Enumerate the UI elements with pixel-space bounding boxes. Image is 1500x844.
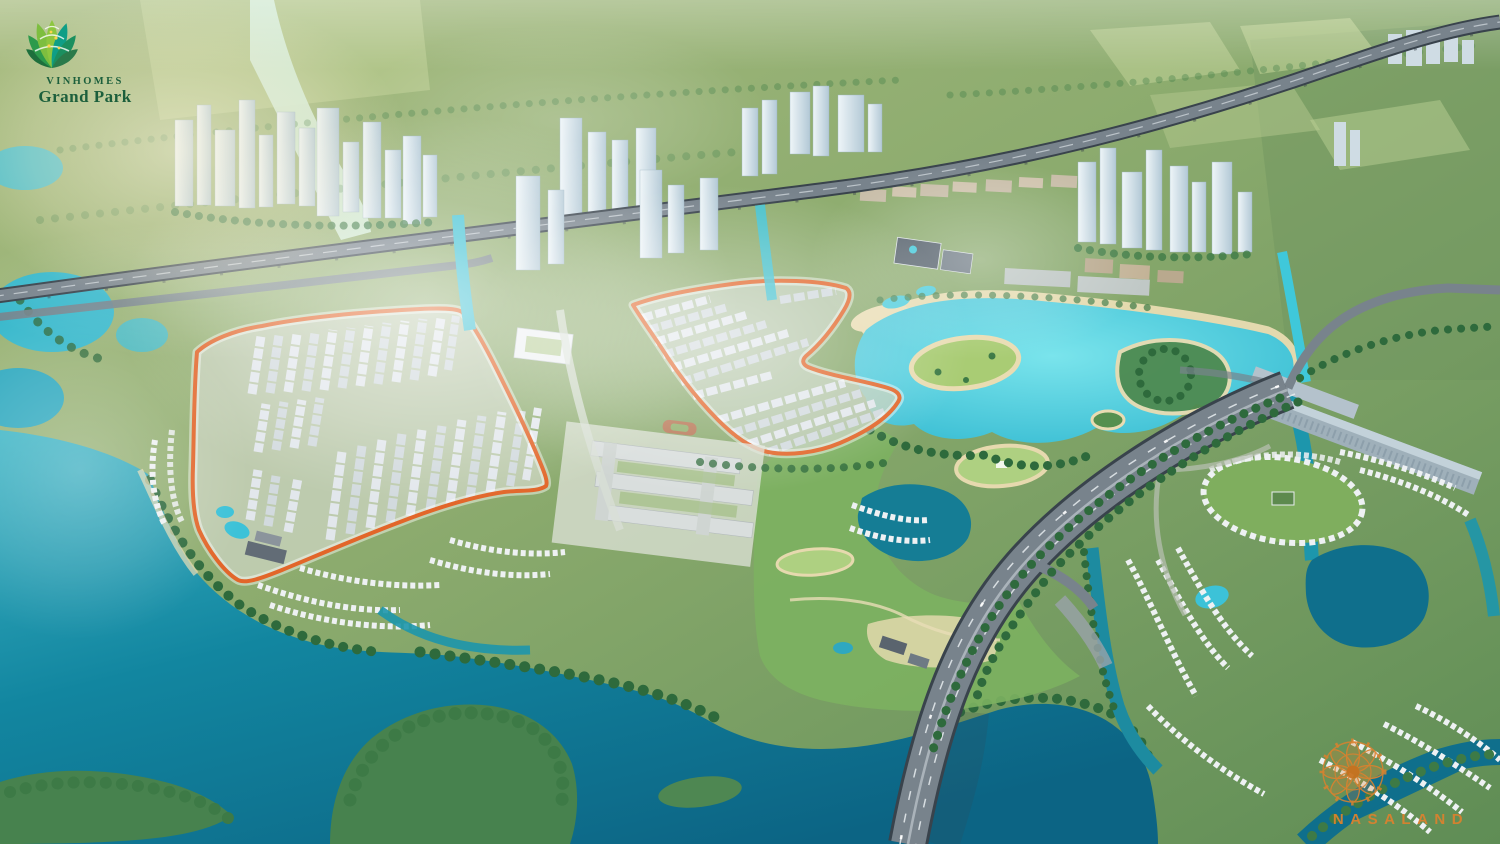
scene [0, 0, 1500, 844]
vinhomes-project-text: Grand Park [24, 87, 146, 107]
nasaland-brand-text: NASALAND [1316, 811, 1486, 828]
vinhomes-tree-icon [24, 16, 80, 74]
aerial-masterplan-render: VINHOMES Grand Park NASALAND [0, 0, 1500, 844]
vinhomes-brand-text: VINHOMES [24, 76, 146, 87]
vinhomes-logo: VINHOMES Grand Park [24, 16, 146, 107]
nasaland-flower-icon [1316, 735, 1390, 809]
nasaland-watermark: NASALAND [1316, 735, 1486, 828]
